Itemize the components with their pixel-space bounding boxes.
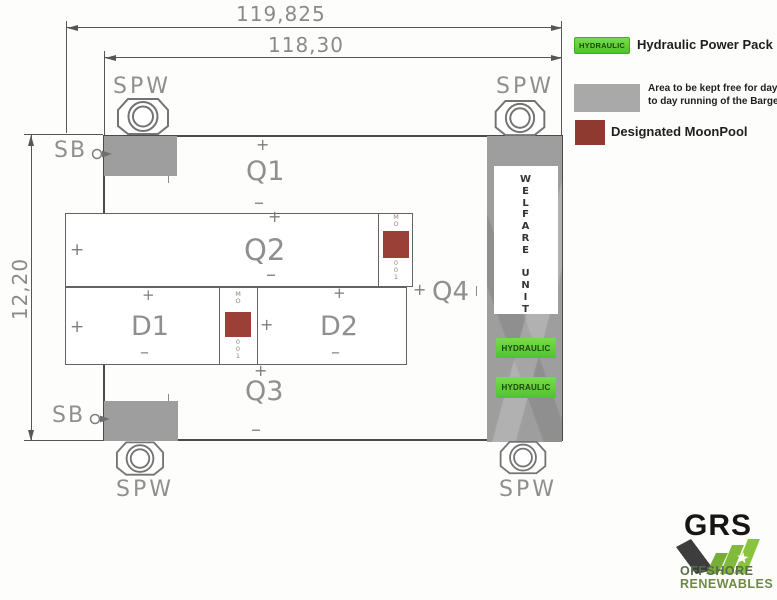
dim-arrow-left (67, 25, 78, 31)
label-q3: Q3 (245, 376, 283, 407)
label-spw-top-left: SPW (113, 74, 171, 99)
dim-line (31, 135, 32, 441)
label-spw-bottom-right: SPW (499, 477, 557, 502)
plus-marker: + (142, 286, 155, 304)
legend-swatch-hydraulic: HYDRAULIC (574, 37, 630, 54)
moonpool-q2 (383, 231, 409, 258)
minus-marker: – (331, 342, 340, 363)
minus-marker: – (266, 262, 276, 286)
sb-symbol-icon (90, 146, 116, 162)
minus-marker: – (254, 190, 264, 214)
logo-renewables-text: RENEWABLES (680, 577, 773, 591)
legend-label-keep-free-line2: to day running of the Barge (648, 96, 777, 107)
ref-tick (476, 286, 477, 296)
extension-line (24, 440, 103, 441)
legend-label-keep-free-line1: Area to be kept free for day (648, 83, 777, 94)
plus-marker: + (333, 284, 346, 302)
winch-nut-icon (116, 441, 164, 477)
legend-label-hydraulic: Hydraulic Power Pack 1 + 2 (637, 37, 777, 52)
dim-line (105, 57, 562, 58)
label-sb-bottom: SB (52, 403, 85, 428)
dim-arrow-right (551, 55, 562, 61)
legend-swatch-keep-free (574, 84, 640, 112)
legend-label-moonpool: Designated MoonPool (611, 124, 748, 139)
barge-deck-drawing: 119,825 118,30 12,20 M O 0 0 1 M O 0 0 1… (0, 0, 777, 600)
dim-deck-length: 118,30 (268, 33, 344, 57)
label-d2: D2 (320, 311, 358, 342)
winch-nut-icon (494, 100, 546, 137)
plus-marker: + (254, 361, 267, 380)
label-sb-top: SB (54, 138, 87, 163)
welfare-unit-box: W E L F A R E U N I T (494, 166, 558, 314)
extension-line (104, 51, 105, 135)
dim-arrow-left (105, 55, 116, 61)
plus-marker: + (70, 240, 84, 260)
winch-nut-icon (496, 441, 550, 475)
plus-marker: + (413, 280, 426, 299)
legend-swatch-moonpool (575, 120, 605, 145)
label-q1: Q1 (246, 156, 284, 187)
plus-marker: + (260, 315, 273, 334)
ref-tick (168, 394, 169, 401)
extension-line (24, 134, 103, 135)
ref-tick (168, 176, 169, 183)
hydraulic-power-pack-2: HYDRAULIC (496, 377, 556, 398)
d-row-divider-left (219, 288, 220, 364)
keep-free-area-bottom-left (104, 401, 178, 441)
extension-line (561, 21, 562, 135)
moonpool-d (225, 312, 251, 337)
dim-beam-width: 12,20 (8, 254, 32, 324)
winch-nut-icon (117, 98, 169, 136)
plus-marker: + (70, 317, 84, 337)
minus-marker: – (140, 342, 149, 363)
label-spw-top-right: SPW (496, 74, 554, 99)
extension-line (66, 21, 67, 133)
logo-offshore-text: OFFSHORE (680, 564, 753, 578)
label-q2: Q2 (244, 233, 285, 267)
sb-symbol-icon (88, 411, 114, 427)
plus-marker: + (268, 207, 281, 226)
moonpool-tag-top: M O (231, 291, 245, 305)
label-q4: Q4 (432, 277, 469, 307)
hydraulic-power-pack-1: HYDRAULIC (496, 338, 556, 358)
moonpool-tag-bottom: 0 0 1 (389, 260, 403, 281)
minus-marker: – (251, 417, 261, 441)
dim-arrow-up (28, 135, 34, 146)
d-row-divider-right (257, 288, 258, 364)
plus-marker: + (256, 135, 269, 154)
moonpool-tag-top: M O (389, 214, 403, 228)
dim-overall-length: 119,825 (236, 2, 326, 26)
q2-moonpool-divider (378, 214, 379, 286)
moonpool-tag-bottom: 0 0 1 (231, 339, 245, 360)
compartment-q2-box (65, 213, 413, 287)
label-spw-bottom-left: SPW (116, 477, 174, 502)
dim-line (67, 27, 562, 28)
label-d1: D1 (131, 311, 169, 342)
